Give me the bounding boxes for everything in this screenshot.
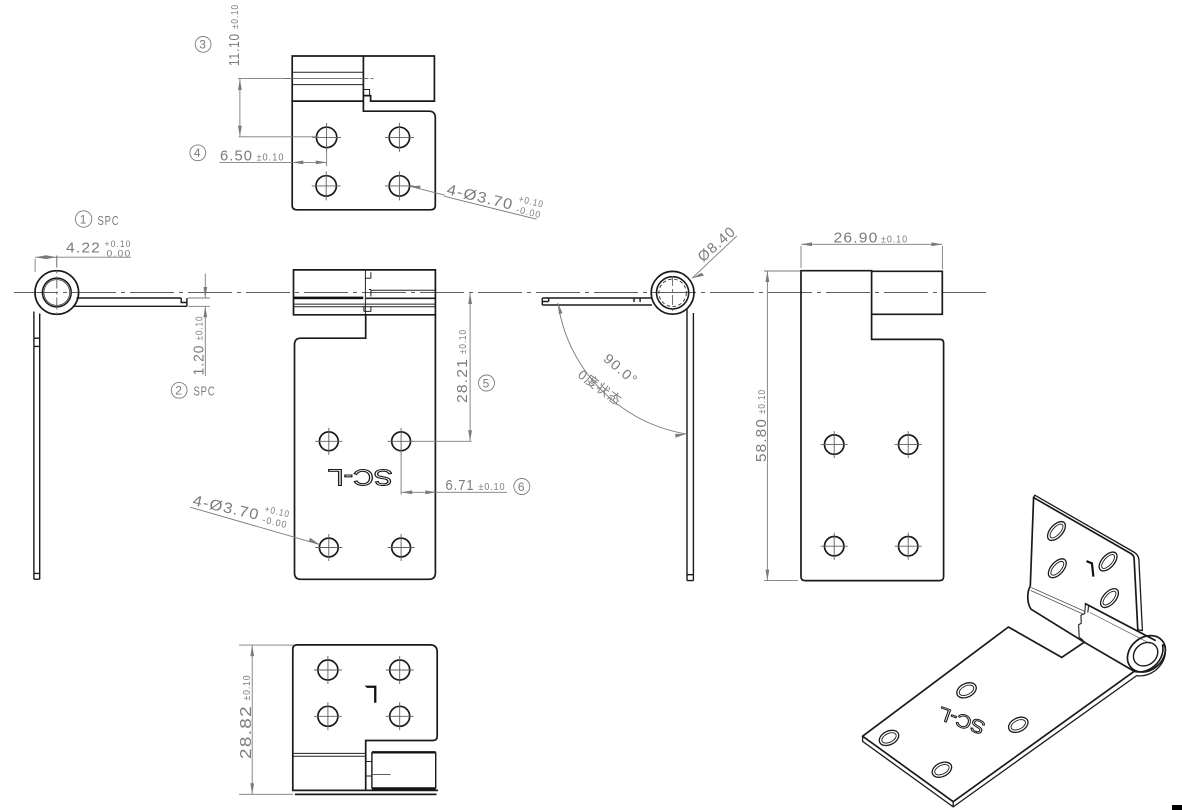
svg-text:±0.10: ±0.10 bbox=[195, 316, 206, 341]
svg-text:58.80: 58.80 bbox=[753, 418, 770, 462]
svg-text:4: 4 bbox=[194, 146, 202, 160]
svg-text:1.20: 1.20 bbox=[191, 345, 208, 376]
svg-text:±0.10: ±0.10 bbox=[458, 329, 469, 354]
svg-text:2: 2 bbox=[175, 384, 183, 398]
svg-text:±0.10: ±0.10 bbox=[230, 4, 241, 29]
svg-text:28.21: 28.21 bbox=[454, 358, 471, 403]
svg-text:4.22: 4.22 bbox=[66, 240, 101, 257]
svg-text:28.82: 28.82 bbox=[238, 705, 255, 759]
svg-text:6.50: 6.50 bbox=[220, 147, 253, 164]
svg-text:6.71: 6.71 bbox=[446, 477, 475, 494]
svg-text:3: 3 bbox=[199, 38, 207, 52]
svg-text:±0.10: ±0.10 bbox=[479, 482, 506, 493]
svg-text:±0.10: ±0.10 bbox=[257, 152, 285, 163]
svg-text:1: 1 bbox=[80, 212, 88, 226]
svg-text:SPC: SPC bbox=[98, 214, 120, 228]
svg-text:5: 5 bbox=[483, 376, 491, 390]
svg-text:±0.10: ±0.10 bbox=[881, 234, 908, 245]
svg-text:11.10: 11.10 bbox=[226, 33, 243, 66]
svg-text:±0.10: ±0.10 bbox=[757, 389, 768, 414]
svg-text:SPC: SPC bbox=[194, 385, 216, 399]
svg-text:26.90: 26.90 bbox=[834, 229, 879, 246]
svg-text:SC-L: SC-L bbox=[328, 465, 393, 491]
svg-text:6: 6 bbox=[518, 480, 526, 494]
svg-text:0.00: 0.00 bbox=[107, 249, 132, 260]
svg-text:±0.10: ±0.10 bbox=[241, 675, 253, 701]
